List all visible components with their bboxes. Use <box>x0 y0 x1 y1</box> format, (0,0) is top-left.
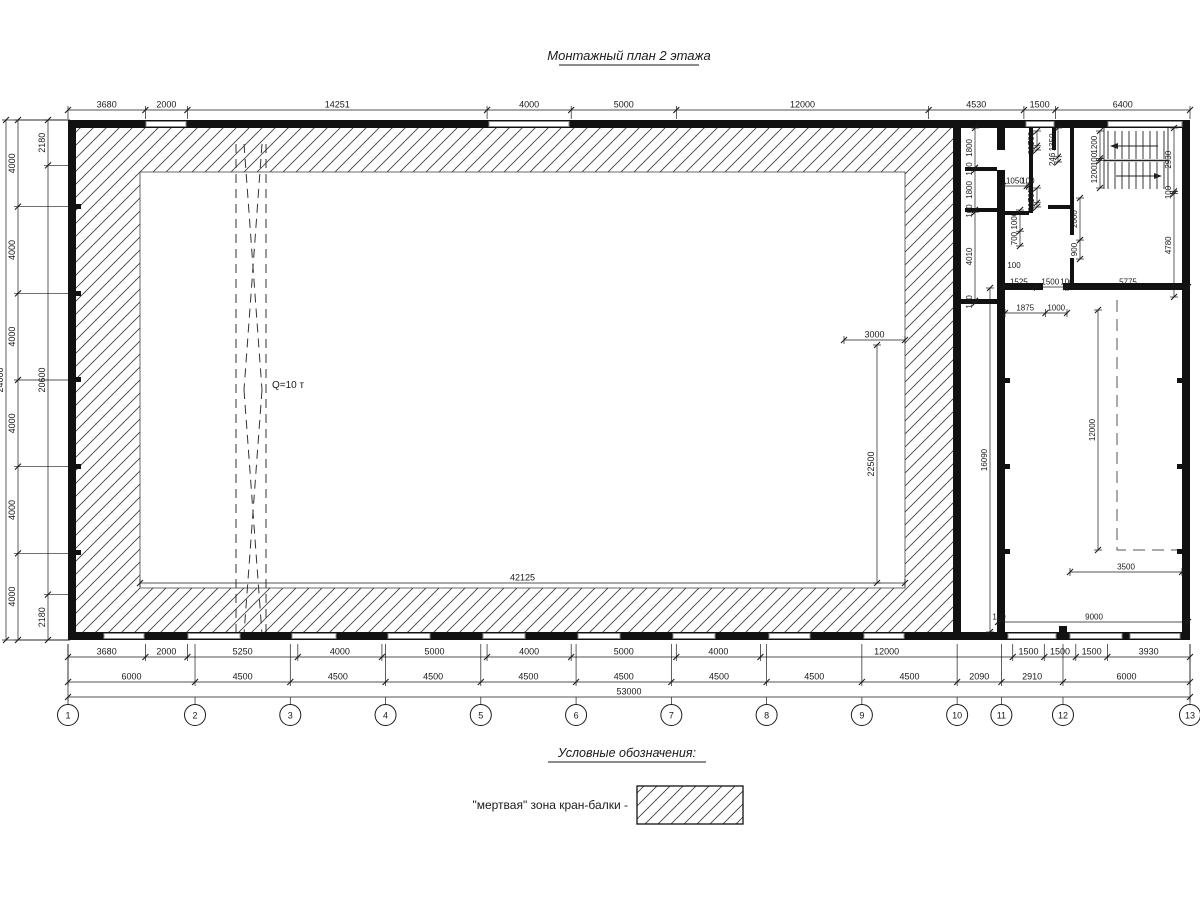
window <box>146 122 186 127</box>
wall <box>1048 205 1073 209</box>
window <box>483 634 525 639</box>
dim-label: 2180 <box>37 133 47 153</box>
dim-label: 200 <box>1027 198 1036 212</box>
window <box>292 634 336 639</box>
dim-chain-partition-mid: 700200 <box>1027 185 1041 212</box>
window <box>1026 122 1054 127</box>
dim-label: 6000 <box>121 672 141 682</box>
dim-chain-crane-zone-height: 22500 <box>866 342 881 586</box>
dim-label: 4530 <box>966 100 986 110</box>
dim-label: 9000 <box>1085 613 1103 622</box>
dim-label: 2090 <box>969 672 989 682</box>
dim-chain-right-room-dashed-length: 12000 <box>1088 307 1102 553</box>
window <box>578 634 620 639</box>
dim-label: 3680 <box>97 647 117 657</box>
axis-number: 8 <box>764 711 769 721</box>
window <box>1070 634 1122 639</box>
dim-label: 5250 <box>233 647 253 657</box>
dim-label: 4010 <box>965 247 974 265</box>
dim-chain-stair-flights: 12001001200 <box>1090 128 1104 191</box>
dim-label: 4500 <box>614 672 634 682</box>
dim-label: 4000 <box>7 413 17 433</box>
axis-bubble-1: 1 <box>58 697 79 726</box>
wall <box>953 128 961 632</box>
dim-label: 6000 <box>1116 672 1136 682</box>
axis-bubble-8: 8 <box>756 697 777 726</box>
dim-label: 700 <box>1010 231 1019 245</box>
axis-bubble-12: 12 <box>1052 697 1073 726</box>
dim-label: 1500 <box>1082 647 1102 657</box>
dim-label: 1800 <box>965 138 974 156</box>
wall <box>68 120 1190 128</box>
dim-chain-right-room-width: 1009000 <box>992 613 1191 627</box>
dim-label: 14251 <box>325 100 350 110</box>
column-mark <box>76 204 81 209</box>
column-mark <box>1177 549 1182 554</box>
dim-label: 1200 <box>1090 135 1099 153</box>
dim-label: 3500 <box>1117 563 1135 572</box>
window <box>489 122 569 127</box>
dim-chain-right-room-dashed-offset: 3500 <box>1067 563 1185 577</box>
axis-bubble-11: 11 <box>991 697 1012 726</box>
dim-label: 5000 <box>614 100 634 110</box>
dim-label: 3930 <box>1139 647 1159 657</box>
axis-number: 13 <box>1185 711 1195 721</box>
dim-label: 2930 <box>1164 150 1173 168</box>
dim-label: 3680 <box>97 100 117 110</box>
legend-dead-zone-label: "мертвая" зона кран-балки - <box>472 798 628 812</box>
column-mark <box>1177 378 1182 383</box>
window <box>388 634 430 639</box>
axis-bubble-10: 10 <box>947 697 968 726</box>
axis-number: 2 <box>193 711 198 721</box>
staircase <box>1104 128 1168 189</box>
crane-zone-boundary <box>140 172 905 588</box>
axis-bubble-6: 6 <box>566 697 587 726</box>
dim-label: 100 <box>1060 278 1074 287</box>
window <box>864 634 904 639</box>
dim-label: 100 <box>965 162 974 176</box>
dim-label: 4780 <box>1164 236 1173 254</box>
axis-number: 4 <box>383 711 388 721</box>
dim-chain-top-row: 36802000142514000500012000453015006400 <box>65 100 1193 120</box>
dim-chain-right-room-height: 16090 <box>980 285 994 635</box>
column-mark <box>76 464 81 469</box>
dim-label: 100 <box>1021 177 1035 186</box>
dim-label: 5000 <box>614 647 634 657</box>
dim-label: 1000 <box>1047 304 1065 313</box>
axis-number: 6 <box>574 711 579 721</box>
dim-label: 1350 <box>1048 133 1057 151</box>
window <box>1130 634 1180 639</box>
axis-number: 1 <box>65 711 70 721</box>
dim-label: 12000 <box>874 647 899 657</box>
dim-label: 5775 <box>1119 278 1137 287</box>
column-mark <box>1177 464 1182 469</box>
column-mark <box>1005 549 1010 554</box>
column-mark <box>1005 464 1010 469</box>
arrowhead-icon <box>1110 143 1118 149</box>
dim-chain-partition-top: 700200 <box>1027 128 1041 155</box>
dim-label: 4500 <box>328 672 348 682</box>
dim-label: 12000 <box>790 100 815 110</box>
wall <box>997 120 1005 150</box>
dim-label: 1800 <box>965 180 974 198</box>
dim-label: 4000 <box>519 647 539 657</box>
window <box>1108 122 1182 127</box>
column-mark <box>1005 378 1010 383</box>
columns <box>76 204 1182 555</box>
dim-label: 1500 <box>1018 647 1038 657</box>
dim-label: 2000 <box>156 100 176 110</box>
dim-label: 20600 <box>37 367 47 392</box>
dim-label: 1500 <box>1050 647 1070 657</box>
legend-hatch-swatch <box>637 786 743 824</box>
dim-label: 4500 <box>423 672 443 682</box>
dim-label: 4500 <box>709 672 729 682</box>
axis-number: 3 <box>288 711 293 721</box>
dim-label: 42125 <box>510 573 535 583</box>
dim-label: 4000 <box>708 647 728 657</box>
drawing-sheet: { "title": "Монтажный план 2 этажа", "cr… <box>0 0 1200 900</box>
dim-chain-bottom-row-1: 3680200052504000500040005000400012000150… <box>65 644 1193 661</box>
drawing-title: Монтажный план 2 этажа <box>547 48 710 63</box>
axis-bubble-2: 2 <box>185 697 206 726</box>
dim-label: 1875 <box>1016 304 1034 313</box>
dim-label: 4000 <box>330 647 350 657</box>
window <box>769 634 810 639</box>
dim-label: 4500 <box>804 672 824 682</box>
dim-label: 5000 <box>424 647 444 657</box>
arrowhead-icon <box>1154 173 1162 179</box>
dim-label: 246 <box>1048 152 1057 166</box>
dim-label: 2180 <box>37 607 47 627</box>
dim-chain-crane-zone-offset: 3000 <box>841 330 908 345</box>
dim-label: 53000 <box>616 687 641 697</box>
axis-number: 11 <box>997 711 1006 721</box>
dim-label: 2910 <box>1022 672 1042 682</box>
dim-label: 100 <box>1007 261 1021 270</box>
dim-label: 24000 <box>0 367 5 392</box>
axis-number: 5 <box>478 711 483 721</box>
dim-label: 4500 <box>233 672 253 682</box>
dim-label: 1200 <box>1090 165 1099 183</box>
crane-beam-symbol <box>236 144 266 634</box>
wall <box>997 170 1005 632</box>
axis-bubble-13: 13 <box>1180 697 1200 726</box>
dim-label: 4500 <box>518 672 538 682</box>
column-mark <box>76 550 81 555</box>
dim-label: 4500 <box>899 672 919 682</box>
dim-label: 3000 <box>864 330 884 340</box>
wall <box>1059 626 1067 632</box>
crane-dead-zone-hatch <box>76 128 953 632</box>
dim-label: 4000 <box>7 153 17 173</box>
dim-label: 100 <box>965 204 974 218</box>
dim-label: 100 <box>992 613 1006 622</box>
dim-label: 2000 <box>156 647 176 657</box>
dim-label: 1500 <box>1041 278 1059 287</box>
axis-bubble-7: 7 <box>661 697 682 726</box>
legend-heading: Условные обозначения: <box>557 746 696 760</box>
dim-label: 1500 <box>1030 100 1050 110</box>
column-mark <box>76 291 81 296</box>
axis-bubble-3: 3 <box>280 697 301 726</box>
dim-label: 4000 <box>7 327 17 347</box>
dim-label: 100 <box>1090 152 1099 166</box>
right-room-dashed-route <box>1117 300 1182 550</box>
windows <box>104 122 1182 639</box>
dim-label: 4000 <box>7 587 17 607</box>
dim-label: 22500 <box>866 451 876 476</box>
dim-label: 4000 <box>7 240 17 260</box>
window <box>673 634 715 639</box>
dim-label: 100 <box>1164 185 1173 199</box>
axis-bubbles: 12345678910111213 <box>58 697 1200 726</box>
column-mark <box>76 377 81 382</box>
dim-label: 16090 <box>980 448 989 471</box>
dim-chain-corridor-rooms: 180010018001004010100 <box>965 125 979 309</box>
axis-bubble-4: 4 <box>375 697 396 726</box>
dim-label: 200 <box>1027 141 1036 155</box>
wall <box>1182 120 1190 640</box>
axis-number: 9 <box>859 711 864 721</box>
dim-label: 4000 <box>7 500 17 520</box>
window <box>188 634 240 639</box>
dim-label: 12000 <box>1088 418 1097 441</box>
axis-bubble-5: 5 <box>470 697 491 726</box>
crane-capacity-label: Q=10 т <box>272 380 305 391</box>
axis-number: 7 <box>669 711 674 721</box>
dim-chain-crane-zone-width: 42125 <box>137 573 908 588</box>
dim-label: 6400 <box>1113 100 1133 110</box>
dim-label: 2000 <box>1070 210 1079 228</box>
floor-plan-canvas: 3680200014251400050001200045301500640040… <box>0 0 1200 900</box>
dim-label: 1525 <box>1010 278 1028 287</box>
axis-bubble-9: 9 <box>851 697 872 726</box>
axis-number: 12 <box>1058 711 1068 721</box>
dim-label: 4000 <box>519 100 539 110</box>
dim-label: 100 <box>965 295 974 309</box>
dim-label: 900 <box>1070 242 1079 256</box>
dim-chain-rooms-bottom-2: 18751000 <box>1002 304 1070 318</box>
window <box>1008 634 1056 639</box>
axis-number: 10 <box>952 711 962 721</box>
dim-label: 1000 <box>1010 211 1019 229</box>
window <box>104 634 144 639</box>
dim-chain-stairwell-outer: 29301004780 <box>1164 125 1178 300</box>
